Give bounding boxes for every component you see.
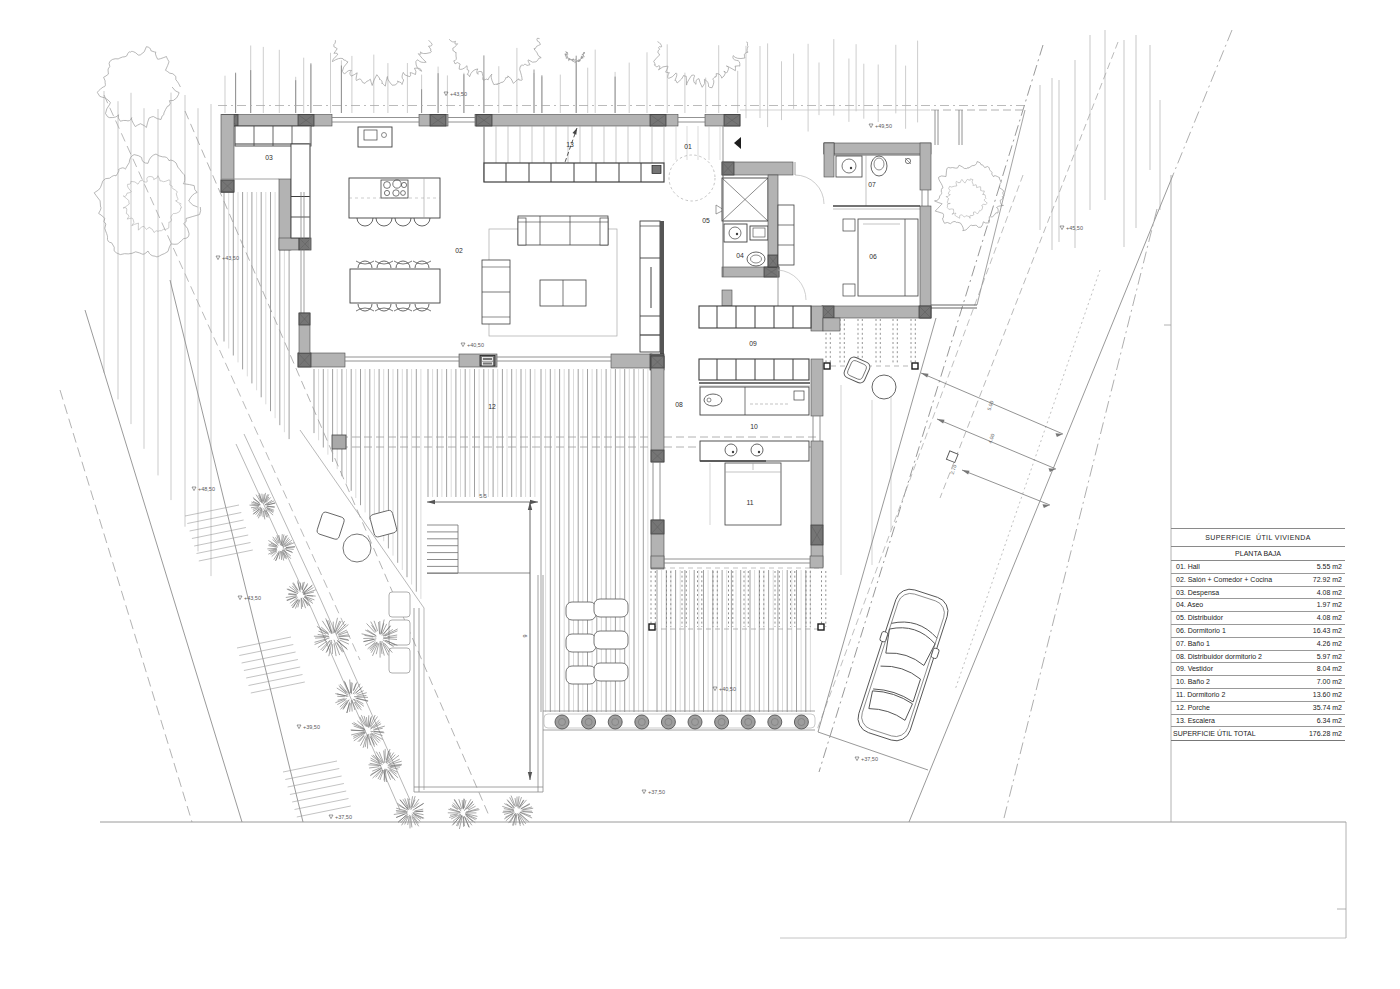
svg-text:5.5: 5.5	[479, 493, 487, 499]
svg-text:2.70: 2.70	[949, 464, 958, 475]
svg-text:+45,50: +45,50	[1066, 225, 1083, 231]
svg-text:9: 9	[522, 634, 528, 637]
svg-text:02: 02	[455, 247, 463, 254]
svg-text:+43,50: +43,50	[222, 255, 239, 261]
svg-text:04: 04	[736, 252, 744, 259]
svg-text:06: 06	[869, 253, 877, 260]
svg-text:+40,50: +40,50	[467, 342, 484, 348]
svg-text:+43,50: +43,50	[244, 595, 261, 601]
svg-text:+43,50: +43,50	[450, 91, 467, 97]
svg-text:10: 10	[750, 423, 758, 430]
svg-text:4.00: 4.00	[987, 433, 996, 444]
svg-text:11: 11	[746, 499, 753, 506]
svg-text:12: 12	[488, 403, 496, 410]
svg-text:01: 01	[684, 143, 692, 150]
svg-text:08: 08	[675, 401, 683, 408]
svg-text:+48,50: +48,50	[198, 486, 215, 492]
svg-text:+37,50: +37,50	[648, 789, 665, 795]
svg-text:09: 09	[749, 340, 757, 347]
svg-text:+37,50: +37,50	[335, 814, 352, 820]
svg-text:+39,50: +39,50	[303, 724, 320, 730]
svg-text:13: 13	[566, 141, 574, 148]
svg-text:07: 07	[868, 181, 876, 188]
svg-text:+49,50: +49,50	[875, 123, 892, 129]
svg-text:+40,50: +40,50	[719, 686, 736, 692]
svg-text:03: 03	[265, 154, 273, 161]
svg-text:+37,50: +37,50	[861, 756, 878, 762]
svg-text:05: 05	[702, 217, 710, 224]
